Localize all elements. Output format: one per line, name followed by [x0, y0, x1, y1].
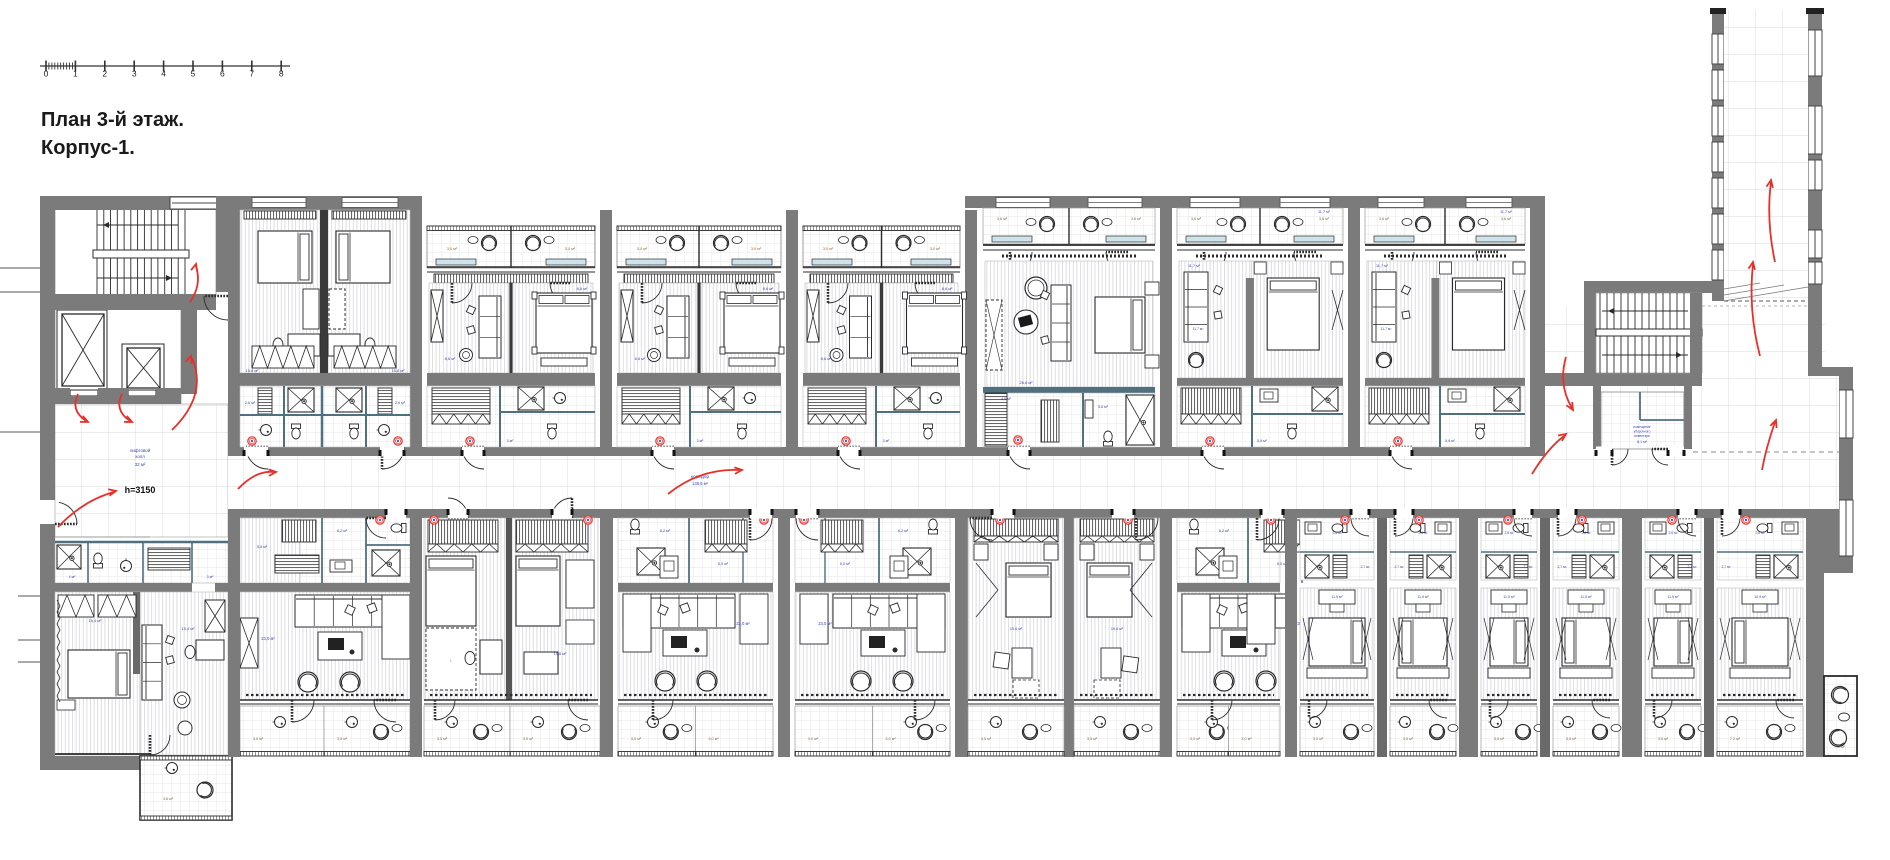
- svg-text:23,0 м²: 23,0 м²: [736, 621, 750, 626]
- svg-text:2,6 м²: 2,6 м²: [395, 401, 406, 405]
- svg-text:15,4 м²: 15,4 м²: [89, 618, 103, 623]
- svg-text:3,5 м²: 3,5 м²: [523, 737, 534, 741]
- svg-text:11,5 м²: 11,5 м²: [1667, 595, 1679, 599]
- svg-text:2,6 м²: 2,6 м²: [1332, 531, 1342, 535]
- svg-text:8,6 м²: 8,6 м²: [821, 356, 832, 361]
- svg-text:L: L: [450, 659, 452, 663]
- svg-text:3,6 м²: 3,6 м²: [1501, 217, 1512, 221]
- svg-text:11,5 м²: 11,5 м²: [1331, 595, 1343, 599]
- svg-text:3,0 м²: 3,0 м²: [1241, 737, 1252, 741]
- svg-text:6,2 м²: 6,2 м²: [660, 529, 671, 533]
- svg-text:3 м²: 3 м²: [883, 439, 890, 443]
- svg-text:3,5 м²: 3,5 м²: [1566, 737, 1577, 741]
- svg-text:15,8 м²: 15,8 м²: [246, 368, 260, 373]
- svg-text:7,2 м²: 7,2 м²: [1730, 737, 1741, 741]
- svg-text:23,0 м²: 23,0 м²: [818, 621, 832, 626]
- svg-text:3 м²: 3 м²: [207, 575, 214, 579]
- svg-text:2,6 м²: 2,6 м²: [1668, 531, 1678, 535]
- svg-text:11,5 м²: 11,5 м²: [1417, 595, 1429, 599]
- svg-text:8,6 м²: 8,6 м²: [577, 286, 588, 291]
- svg-text:План 3-й этаж.: План 3-й этаж.: [41, 109, 184, 131]
- svg-text:5,0 м²: 5,0 м²: [840, 562, 851, 566]
- svg-text:3,5 м²: 3,5 м²: [437, 737, 448, 741]
- svg-text:11,7 м²: 11,7 м²: [1500, 210, 1513, 214]
- svg-text:5,8 м²: 5,8 м²: [257, 545, 268, 549]
- svg-text:3,6 м²: 3,6 м²: [997, 217, 1008, 221]
- svg-text:3,6 м²: 3,6 м²: [1319, 217, 1330, 221]
- svg-text:2,7 м²: 2,7 м²: [1394, 565, 1404, 569]
- svg-text:2,6 м²: 2,6 м²: [1581, 531, 1591, 535]
- svg-text:3,0 м²: 3,0 м²: [823, 247, 834, 251]
- svg-text:8,6 м²: 8,6 м²: [942, 286, 953, 291]
- svg-text:3,5 м²: 3,5 м²: [253, 737, 264, 741]
- svg-text:15,8 м²: 15,8 м²: [392, 368, 406, 373]
- svg-text:8,1 м²: 8,1 м²: [1637, 440, 1647, 444]
- svg-text:3,6 м²: 3,6 м²: [1131, 217, 1142, 221]
- svg-text:3,0 м²: 3,0 м²: [565, 247, 576, 251]
- svg-text:10,9 м²: 10,9 м²: [1754, 595, 1766, 599]
- svg-text:4,6 м²: 4,6 м²: [1001, 397, 1011, 401]
- svg-text:8,6 м²: 8,6 м²: [445, 356, 456, 361]
- svg-text:19,6 м²: 19,6 м²: [554, 651, 568, 656]
- svg-text:3,0 м²: 3,0 м²: [808, 737, 819, 741]
- svg-text:11,7 м²: 11,7 м²: [1376, 264, 1389, 268]
- svg-text:3,5 м²: 3,5 м²: [1313, 737, 1324, 741]
- svg-text:3,5 м²: 3,5 м²: [1658, 737, 1669, 741]
- svg-text:11,7 м²: 11,7 м²: [1193, 327, 1205, 331]
- svg-text:32 м²: 32 м²: [135, 462, 146, 467]
- svg-text:5,0 м²: 5,0 м²: [718, 562, 729, 566]
- svg-text:2,7 м²: 2,7 м²: [1687, 565, 1697, 569]
- svg-text:8: 8: [279, 69, 284, 79]
- svg-text:3,0 м²: 3,0 м²: [1190, 737, 1201, 741]
- svg-text:2,6 м²: 2,6 м²: [1418, 531, 1428, 535]
- svg-text:5,9 м²: 5,9 м²: [1257, 439, 1267, 443]
- svg-text:3,0 м²: 3,0 м²: [885, 737, 896, 741]
- svg-text:3,0 м²: 3,0 м²: [631, 737, 642, 741]
- svg-text:19,6 м²: 19,6 м²: [1111, 627, 1124, 631]
- svg-text:4: 4: [161, 69, 166, 79]
- svg-text:2,6 м²: 2,6 м²: [1755, 531, 1765, 535]
- svg-text:3,0 м²: 3,0 м²: [447, 247, 458, 251]
- svg-text:3,5 м²: 3,5 м²: [1494, 737, 1505, 741]
- svg-text:19,6 м²: 19,6 м²: [1010, 627, 1023, 631]
- svg-text:помещение: помещение: [1633, 425, 1650, 429]
- svg-text:3 м²: 3 м²: [697, 439, 704, 443]
- svg-text:холл: холл: [135, 454, 145, 459]
- svg-text:6: 6: [220, 69, 225, 79]
- svg-text:8,6 м²: 8,6 м²: [763, 286, 774, 291]
- svg-text:7,2 м²: 7,2 м²: [1835, 745, 1845, 749]
- svg-text:2,7 м²: 2,7 м²: [1360, 565, 1370, 569]
- svg-text:3 м²: 3 м²: [507, 439, 514, 443]
- svg-text:11,5 м²: 11,5 м²: [1503, 595, 1515, 599]
- svg-text:2,7 м²: 2,7 м²: [1557, 565, 1567, 569]
- svg-text:6,2 м²: 6,2 м²: [337, 529, 348, 533]
- svg-text:4 м²: 4 м²: [69, 575, 76, 579]
- svg-text:уборочного: уборочного: [1634, 430, 1651, 434]
- svg-text:инвентаря: инвентаря: [1634, 434, 1650, 438]
- svg-text:138,6 м²: 138,6 м²: [692, 481, 709, 486]
- svg-text:5,9 м²: 5,9 м²: [1445, 439, 1455, 443]
- svg-text:3,0 м²: 3,0 м²: [708, 737, 719, 741]
- svg-text:11,7 м²: 11,7 м²: [1188, 264, 1201, 268]
- svg-text:3,0 м²: 3,0 м²: [637, 247, 648, 251]
- svg-text:0: 0: [44, 69, 49, 79]
- svg-text:h=3150: h=3150: [125, 485, 156, 495]
- svg-text:3,5 м²: 3,5 м²: [1403, 737, 1414, 741]
- svg-text:3,0 м²: 3,0 м²: [930, 247, 941, 251]
- svg-text:11,7 м²: 11,7 м²: [1318, 210, 1331, 214]
- svg-text:8,6 м²: 8,6 м²: [635, 356, 646, 361]
- svg-text:1: 1: [73, 69, 78, 79]
- svg-text:3,6 м²: 3,6 м²: [1191, 217, 1202, 221]
- svg-text:6,2 м²: 6,2 м²: [898, 529, 909, 533]
- svg-text:3,5 м²: 3,5 м²: [1087, 737, 1098, 741]
- svg-text:5: 5: [191, 69, 196, 79]
- svg-text:3,6 м²: 3,6 м²: [163, 797, 174, 801]
- svg-text:3,5 м²: 3,5 м²: [337, 737, 348, 741]
- svg-text:6,2 м²: 6,2 м²: [1219, 529, 1230, 533]
- svg-text:3,5 м²: 3,5 м²: [981, 737, 992, 741]
- svg-text:11,7 м²: 11,7 м²: [1381, 327, 1393, 331]
- svg-text:7: 7: [249, 69, 254, 79]
- svg-text:2,7 м²: 2,7 м²: [1523, 565, 1533, 569]
- svg-text:2,6 м²: 2,6 м²: [245, 401, 256, 405]
- svg-text:3: 3: [132, 69, 137, 79]
- svg-text:3,6 м²: 3,6 м²: [1379, 217, 1390, 221]
- svg-text:Корпус-1.: Корпус-1.: [41, 137, 135, 159]
- svg-text:23,0 м²: 23,0 м²: [261, 636, 275, 641]
- svg-text:3,0 м²: 3,0 м²: [751, 247, 762, 251]
- svg-text:15,4 м²: 15,4 м²: [182, 626, 196, 631]
- svg-text:26,6 м²: 26,6 м²: [1020, 380, 1034, 385]
- svg-text:5,6 м²: 5,6 м²: [1098, 405, 1108, 409]
- svg-text:11,5 м²: 11,5 м²: [1580, 595, 1592, 599]
- svg-text:2,6 м²: 2,6 м²: [1504, 531, 1514, 535]
- svg-text:лифтовой: лифтовой: [130, 447, 151, 453]
- svg-text:2: 2: [102, 69, 107, 79]
- svg-text:2,7 м²: 2,7 м²: [1721, 565, 1731, 569]
